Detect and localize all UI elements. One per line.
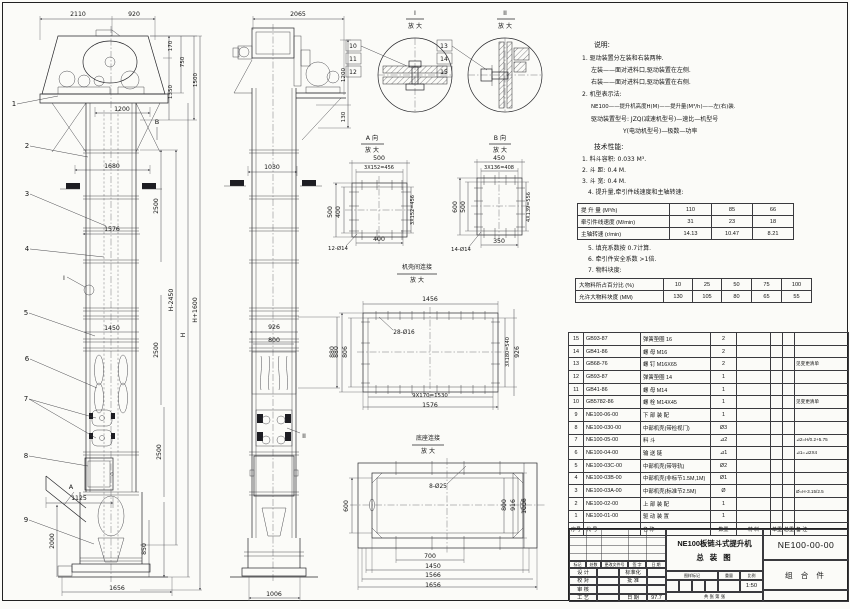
drawing-label: 1125 <box>71 495 87 502</box>
drawing-sheet: 21109201707501350150011200B2168025003157… <box>0 0 850 609</box>
table-cell <box>795 497 849 510</box>
drawing-label: 2 <box>25 142 29 150</box>
drawing-label: 1030 <box>264 164 280 171</box>
table-cell: 螺 母 M14 <box>641 383 711 396</box>
product-name: NE100板链斗式提升机 <box>677 538 751 549</box>
drawing-label: 1456 <box>422 296 438 303</box>
title-block-empty-cell <box>763 590 849 602</box>
drawing-label: 9X170=1530 <box>412 393 448 399</box>
drawing-label: 1576 <box>104 226 120 233</box>
rev-header-date: 日 期 <box>646 561 666 568</box>
table-cell: 1 <box>711 396 737 409</box>
table-cell: 75 <box>752 279 782 291</box>
sign-audit-value2 <box>647 585 666 594</box>
table-cell <box>795 421 849 434</box>
drawing-label: 700 <box>424 553 436 560</box>
table-cell: 110 <box>670 204 712 216</box>
drawing-label: 放 大 <box>498 22 512 30</box>
table-cell <box>737 383 771 396</box>
drawing-label: 1350 <box>168 84 174 99</box>
table-cell <box>737 510 771 523</box>
table-row: 8NE100-030-00中部机壳(带检视门)Ø3 <box>569 421 849 434</box>
table-row: 14GB41-86螺 母 M162 <box>569 345 849 358</box>
table-cell: 10.47 <box>712 228 753 240</box>
title-block: 标记 处数 更改文件号 签 字 日 期 设 计 标准化 校 对 批 准 审 核 … <box>568 528 848 601</box>
table-cell: ⊿1=⊿2X4 <box>795 447 849 460</box>
lift-capacity-table: 提 升 量 (M³/h)1108566牵引件线速度 (M/min)312318主… <box>577 203 793 240</box>
drawing-label: 500 <box>327 206 334 218</box>
drawing-title-cell: NE100板链斗式提升机 总 装 图 <box>666 529 763 571</box>
drawing-label: 7. 物料块度: <box>588 266 622 274</box>
table-cell: 18 <box>753 216 794 228</box>
table-cell: 100 <box>782 279 812 291</box>
drawing-label: 3 <box>25 190 29 198</box>
table-cell: NE100-03B-00 <box>584 472 641 485</box>
rev-header-docno: 更改文件号 <box>601 561 628 568</box>
table-cell: NE100-030-00 <box>584 421 641 434</box>
drawing-label: 1006 <box>266 591 282 598</box>
table-cell <box>795 409 849 422</box>
table-cell: Ø <box>711 485 737 498</box>
table-cell <box>783 358 795 371</box>
drawing-label: 400 <box>335 206 342 218</box>
sign-date-value: 97.7 <box>647 594 666 603</box>
drawing-label: 1450 <box>104 325 120 332</box>
drawing-label: 800 <box>268 337 280 344</box>
table-cell: 5 <box>569 459 584 472</box>
table-cell: 8 <box>569 421 584 434</box>
drawing-label: 3X152=456 <box>410 195 416 225</box>
sign-date-label: 日 期 <box>619 594 647 603</box>
table-cell <box>737 472 771 485</box>
drawing-label: 2500 <box>153 342 160 358</box>
scale-value: 1:50 <box>740 580 763 592</box>
table-cell: NE100-01-00 <box>584 510 641 523</box>
table-cell <box>783 371 795 384</box>
table-cell: 1 <box>569 510 584 523</box>
table-cell <box>771 434 783 447</box>
table-cell: 80 <box>722 291 752 303</box>
table-cell <box>783 434 795 447</box>
table-cell: 23 <box>712 216 753 228</box>
drawing-label: 500 <box>460 201 467 213</box>
table-row: 大物料所占百分比 (%)10255075100 <box>576 279 812 291</box>
table-cell <box>783 472 795 485</box>
table-row: 5NE100-03C-00中部机壳(带导轨)Ø2 <box>569 459 849 472</box>
table-cell: 料 斗 <box>641 434 711 447</box>
drawing-label: 左装——面对进料口,驱动装置在左侧. <box>591 66 691 74</box>
stamp-box-1 <box>666 580 679 592</box>
table-cell <box>783 459 795 472</box>
rev-header-count: 处数 <box>586 561 601 568</box>
sign-audit-value <box>597 585 619 594</box>
detail-i-view <box>346 19 452 112</box>
table-cell <box>771 371 783 384</box>
drawing-label: 2500 <box>153 198 160 214</box>
sign-audit-label2 <box>619 585 647 594</box>
table-cell <box>737 345 771 358</box>
table-cell: 允许大物料块度 (MM) <box>576 291 664 303</box>
table-cell: GB93-87 <box>584 333 641 346</box>
drawing-label: 7 <box>24 395 28 403</box>
drawing-label: 14-Ø14 <box>451 246 471 253</box>
table-cell: 主轴转速 (r/min) <box>578 228 670 240</box>
table-cell <box>783 383 795 396</box>
sign-audit-label: 审 核 <box>569 585 597 594</box>
stamp-header-weight: 重量 <box>718 571 740 580</box>
drawing-label: B 向 <box>494 134 506 142</box>
table-cell <box>737 497 771 510</box>
drawing-label: 说明: <box>594 40 610 49</box>
sign-design-label: 设 计 <box>569 568 597 577</box>
stamp-box-2 <box>679 580 692 592</box>
drawing-label: 28-Ø16 <box>393 329 415 336</box>
drawing-label: 2065 <box>290 11 306 18</box>
table-cell: GB68-76 <box>584 358 641 371</box>
drawing-label: 1680 <box>104 163 120 170</box>
drawing-label: 6 <box>25 355 30 363</box>
table-cell <box>737 459 771 472</box>
drawing-label: 2. 斗 距: 0.4 M. <box>582 167 626 174</box>
table-cell <box>783 396 795 409</box>
table-cell: 见变更清单 <box>795 396 849 409</box>
table-cell: 1 <box>711 371 737 384</box>
drawing-label: 3. 斗 宽: 0.4 M. <box>582 177 626 185</box>
drawing-label: 1656 <box>109 585 125 592</box>
table-row: 15GB93-87弹簧垫圈 162 <box>569 333 849 346</box>
drawing-label: H-2450 <box>168 289 175 312</box>
table-cell: 输 送 链 <box>641 447 711 460</box>
drawing-label: 1576 <box>422 402 438 409</box>
table-cell <box>795 345 849 358</box>
table-cell <box>737 447 771 460</box>
drawing-label: 1200 <box>341 67 347 82</box>
table-cell <box>783 333 795 346</box>
drawing-label: 450 <box>493 155 505 162</box>
casing-joint-detail <box>339 274 517 410</box>
rev-header-sign: 签 字 <box>628 561 646 568</box>
table-cell: GB41-86 <box>584 345 641 358</box>
table-cell <box>771 358 783 371</box>
drawing-label: 12-Ø14 <box>328 245 348 252</box>
table-cell: 65 <box>752 291 782 303</box>
table-cell: Ø3 <box>711 421 737 434</box>
table-cell: 下 部 装 配 <box>641 409 711 422</box>
table-row: 13GB68-76螺 钉 M16X652见变更清单 <box>569 358 849 371</box>
drawing-label: Y(电动机型号)—极数—功率 <box>622 127 697 135</box>
table-cell <box>737 371 771 384</box>
drawing-label: 350 <box>493 238 505 245</box>
drawing-label: 800 <box>501 499 508 511</box>
table-cell: 11 <box>569 383 584 396</box>
drawing-label: 14 <box>440 56 448 63</box>
drawing-label: 400 <box>373 236 385 243</box>
sign-process-label: 工 艺 <box>569 594 597 603</box>
drawing-label: 技术性能: <box>594 142 623 151</box>
drawing-label: H+1600 <box>192 297 199 323</box>
table-cell <box>795 383 849 396</box>
table-cell: 13 <box>569 358 584 371</box>
table-cell: NE100-02-00 <box>584 497 641 510</box>
stamp-box-3 <box>692 580 705 592</box>
table-cell: 弹簧垫圈 16 <box>641 333 711 346</box>
table-cell <box>783 447 795 460</box>
stamp-box-4 <box>705 580 718 592</box>
table-cell <box>783 409 795 422</box>
table-cell <box>795 371 849 384</box>
drawing-label: 1566 <box>425 572 441 579</box>
drawing-label: 1006 <box>521 498 528 514</box>
side-view <box>224 24 346 582</box>
table-cell <box>771 345 783 358</box>
table-cell <box>795 510 849 523</box>
table-cell: ⊿1 <box>711 447 737 460</box>
stamp-header-scale: 比例 <box>740 571 763 580</box>
drawing-label: 机壳间连接 <box>402 263 432 271</box>
table-cell <box>771 447 783 460</box>
material-lump-table: 大物料所占百分比 (%)10255075100允许大物料块度 (MM)13010… <box>575 278 811 303</box>
drawing-label: 600 <box>343 500 350 512</box>
table-cell: 中部机壳(非标节1.5M,1M) <box>641 472 711 485</box>
drawing-label: I <box>63 274 65 282</box>
table-cell: 中部机壳(带导轨) <box>641 459 711 472</box>
drawing-label: 130 <box>341 111 347 122</box>
table-row: 10GB5782-86螺 栓 M14X451见变更清单 <box>569 396 849 409</box>
table-row: 9NE100-06-00下 部 装 配1 <box>569 409 849 422</box>
drawing-label: 5. 填充系数按 0.7计算. <box>588 244 651 252</box>
dimension-lines <box>17 16 351 601</box>
table-cell: 8.21 <box>753 228 794 240</box>
table-cell <box>783 497 795 510</box>
table-cell: 驱 动 装 置 <box>641 510 711 523</box>
table-cell: 15 <box>569 333 584 346</box>
table-row: 11GB41-86螺 母 M141 <box>569 383 849 396</box>
table-cell: 1 <box>711 383 737 396</box>
table-cell <box>771 497 783 510</box>
drawing-label: 4. 提升量,牵引件线速度和主轴转速: <box>588 188 684 196</box>
table-cell: 见变更清单 <box>795 358 849 371</box>
drawing-label: II <box>302 432 306 440</box>
table-cell: 10 <box>664 279 693 291</box>
drawing-label: 1. 料斗容积: 0.033 M³. <box>582 155 646 163</box>
drawing-label: 3X152=456 <box>364 165 394 171</box>
drawing-label: 放 大 <box>493 146 507 154</box>
table-cell: 12 <box>569 371 584 384</box>
drawing-label: 9 <box>24 516 28 524</box>
drawing-label: 12 <box>349 69 357 76</box>
sign-approve-value <box>647 577 666 586</box>
table-cell: Ø=H-3.15/2.5 <box>795 485 849 498</box>
stamp-header-mark: 图样标记 <box>666 571 718 580</box>
drawing-label: 2110 <box>70 11 86 18</box>
table-row: 4NE100-03B-00中部机壳(非标节1.5M,1M)Ø1 <box>569 472 849 485</box>
table-cell <box>771 421 783 434</box>
drawing-label: 驱动装置型号: JZQ(减速机型号)—速比—机型号 <box>591 115 718 123</box>
table-cell: 提 升 量 (M³/h) <box>578 204 670 216</box>
drawing-label: 10 <box>349 43 357 50</box>
table-cell <box>737 333 771 346</box>
table-row: 12GB93-87弹簧垫圈 141 <box>569 371 849 384</box>
rev-header-mark: 标记 <box>569 561 586 568</box>
table-cell: 55 <box>782 291 812 303</box>
table-cell <box>783 485 795 498</box>
drawing-label: 4X139=556 <box>526 192 532 222</box>
sign-design-value <box>597 568 619 577</box>
drawing-label: 放 大 <box>365 146 379 154</box>
drawing-label: 3X136=408 <box>484 165 514 171</box>
drawing-label: 放 大 <box>410 276 424 284</box>
table-cell: 31 <box>670 216 712 228</box>
drawing-label: 底座连接 <box>416 434 440 442</box>
table-cell: 6 <box>569 447 584 460</box>
drawing-label: 右装——面对进料口,驱动装置在右侧. <box>591 78 691 86</box>
left-elevation-view <box>40 26 168 582</box>
drawing-label: H <box>180 332 187 337</box>
drawing-label: 806 <box>342 346 349 358</box>
table-cell <box>771 333 783 346</box>
table-cell: ⊿2=H/0.2+5.75 <box>795 434 849 447</box>
drawing-label: 放 大 <box>408 22 422 30</box>
table-cell: 中部机壳(带检视门) <box>641 421 711 434</box>
table-cell <box>771 485 783 498</box>
table-cell <box>795 333 849 346</box>
table-cell: 1 <box>711 497 737 510</box>
sheet-count-note: 共 张 第 张 <box>666 592 763 602</box>
table-cell: 25 <box>693 279 722 291</box>
table-cell: 2 <box>569 497 584 510</box>
table-cell <box>737 485 771 498</box>
table-row: 3NE100-03A-00中部机壳(标准节2.5M)ØØ=H-3.15/2.5 <box>569 485 849 498</box>
drawing-label: 926 <box>514 346 521 358</box>
table-cell <box>771 396 783 409</box>
table-cell: NE100-03C-00 <box>584 459 641 472</box>
table-cell: 大物料所占百分比 (%) <box>576 279 664 291</box>
drawing-label: 170 <box>168 40 174 51</box>
drawing-label: 13 <box>440 43 448 50</box>
table-cell <box>737 434 771 447</box>
table-cell: 上 部 装 配 <box>641 497 711 510</box>
table-cell: 1 <box>711 409 737 422</box>
table-cell: Ø2 <box>711 459 737 472</box>
table-cell: 66 <box>753 204 794 216</box>
drawing-label: 15 <box>440 69 448 76</box>
table-cell <box>783 510 795 523</box>
drawing-label: NE100——提升机高度H(M)——提升量(M³/h)——左(右)装. <box>591 102 736 110</box>
sign-check-label: 校 对 <box>569 577 597 586</box>
table-cell <box>783 421 795 434</box>
table-cell: 14 <box>569 345 584 358</box>
drawing-label: I <box>414 9 416 17</box>
drawing-label: A <box>69 483 74 491</box>
sign-process-value <box>597 594 619 603</box>
table-cell: 2 <box>711 345 737 358</box>
bom-table: 15GB93-87弹簧垫圈 16214GB41-86螺 母 M16213GB68… <box>568 332 848 528</box>
table-cell <box>737 396 771 409</box>
drawing-label: 1450 <box>425 563 441 570</box>
table-cell: 4 <box>569 472 584 485</box>
drawing-label: 1. 驱动装置分左装和右装两种. <box>582 54 664 62</box>
table-cell: GB93-87 <box>584 371 641 384</box>
table-cell: 85 <box>712 204 753 216</box>
table-cell: NE100-06-00 <box>584 409 641 422</box>
drawing-label: 750 <box>180 56 186 67</box>
drawing-label: 11 <box>349 56 357 63</box>
drawing-label: 850 <box>141 543 148 555</box>
table-cell <box>783 345 795 358</box>
sign-standard-label: 标准化 <box>619 568 647 577</box>
part-class: 组 合 件 <box>763 560 849 590</box>
weight-value <box>718 580 740 592</box>
drawing-label: 2. 机型表示法: <box>582 90 622 98</box>
detail-ii-view <box>437 19 542 112</box>
drawing-label: 600 <box>452 201 459 213</box>
table-cell: 50 <box>722 279 752 291</box>
drawing-label: 926 <box>268 324 280 331</box>
table-cell <box>737 358 771 371</box>
sign-check-value <box>597 577 619 586</box>
drawing-label: 3X180=540 <box>505 337 511 367</box>
table-cell: 螺 母 M16 <box>641 345 711 358</box>
drawing-label: 8-Ø25 <box>429 483 447 490</box>
drawing-label: II <box>503 9 507 17</box>
table-cell: Ø1 <box>711 472 737 485</box>
table-cell: ⊿2 <box>711 434 737 447</box>
table-cell: NE100-04-00 <box>584 447 641 460</box>
revision-grid <box>569 529 666 561</box>
table-cell: 螺 栓 M14X45 <box>641 396 711 409</box>
table-cell: 弹簧垫圈 14 <box>641 371 711 384</box>
table-cell <box>771 510 783 523</box>
table-cell: 2 <box>711 358 737 371</box>
table-row: 1NE100-01-00驱 动 装 置1 <box>569 510 849 523</box>
table-cell <box>795 472 849 485</box>
table-cell: 3 <box>569 485 584 498</box>
drawing-label: 8 <box>24 452 28 460</box>
drawing-label: A 向 <box>366 134 378 142</box>
drawing-label: 6. 牵引件安全系数 >1倍. <box>588 255 656 263</box>
drawing-label: 880 <box>333 346 340 358</box>
drawing-label: 放 大 <box>421 447 435 455</box>
table-cell: 2 <box>711 333 737 346</box>
table-row: 2NE100-02-00上 部 装 配1 <box>569 497 849 510</box>
table-cell <box>771 383 783 396</box>
drawing-label: B <box>155 118 159 126</box>
table-cell: 螺 钉 M16X65 <box>641 358 711 371</box>
table-cell <box>771 409 783 422</box>
table-row: 7NE100-05-00料 斗⊿2⊿2=H/0.2+5.75 <box>569 434 849 447</box>
drawing-label: 5 <box>24 309 28 317</box>
drawing-label: 1656 <box>425 582 441 589</box>
drawing-label: 2000 <box>49 533 56 549</box>
table-cell: 10 <box>569 396 584 409</box>
sign-approve-label: 批 准 <box>619 577 647 586</box>
table-cell: NE100-05-00 <box>584 434 641 447</box>
drawing-label: 1500 <box>193 72 199 87</box>
table-cell <box>737 409 771 422</box>
base-flange-detail <box>349 445 545 590</box>
table-cell: 105 <box>693 291 722 303</box>
drawing-label: 1200 <box>114 106 130 113</box>
table-cell: 1 <box>711 510 737 523</box>
table-cell: NE100-03A-00 <box>584 485 641 498</box>
table-cell: 中部机壳(标准节2.5M) <box>641 485 711 498</box>
drawing-code: NE100-00-00 <box>763 529 849 560</box>
drawing-label: 4 <box>25 245 30 253</box>
drawing-label: 1 <box>12 100 16 108</box>
table-cell: GB41-86 <box>584 383 641 396</box>
drawing-name: 总 装 图 <box>696 552 732 563</box>
table-cell: 牵引件线速度 (M/min) <box>578 216 670 228</box>
